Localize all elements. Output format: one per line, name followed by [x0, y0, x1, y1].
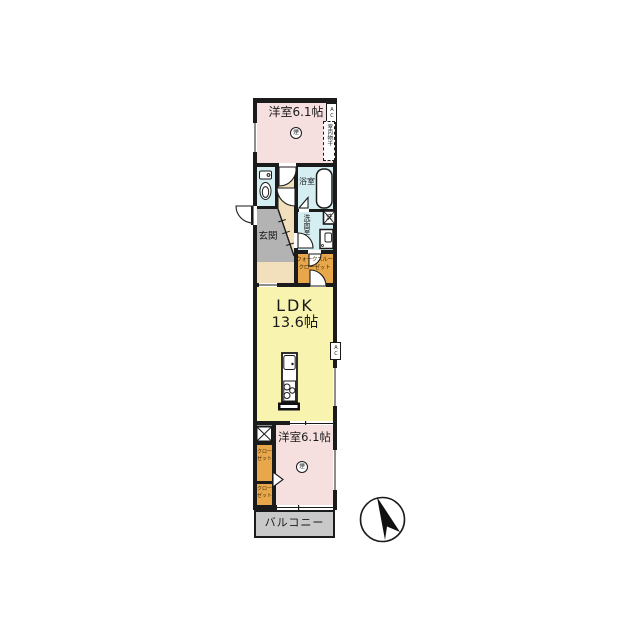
ac-unit-top: AC	[326, 103, 337, 123]
closet-upper-label-line2: ゼット	[257, 457, 273, 463]
closet-lower-label-line2: ゼット	[257, 494, 273, 500]
ldk-name-label: LDK	[257, 297, 333, 315]
smoke-detector-top-label: 煙	[291, 130, 302, 136]
indoor-drying-box: 室内物干	[323, 121, 335, 161]
washbasin-icon	[320, 230, 333, 249]
door-swing-toilet	[277, 188, 295, 206]
balcony-label: バルコニー	[254, 517, 335, 530]
ac-unit-top-label: AC	[329, 107, 334, 119]
bedroom-top-label: 洋室6.1帖	[258, 106, 334, 120]
smoke-detector-bottom-label: 煙	[297, 464, 308, 470]
indoor-drying-label: 室内物干	[326, 124, 332, 146]
door-fold-bath	[299, 198, 308, 209]
door-swing-wtc-bottom	[310, 270, 326, 286]
utility-box-icon	[257, 427, 273, 442]
walkthrough-closet-label-line1: ウォークスルー	[296, 257, 333, 263]
closet-upper-label-line1: クロー	[257, 450, 273, 456]
door-swing-bedroom-top	[279, 167, 296, 186]
genkan-label: 玄関	[256, 232, 280, 243]
bath-label: 浴室	[296, 177, 318, 186]
north-arrow-icon	[361, 497, 405, 542]
door-swing-washroom	[298, 233, 313, 248]
kitchen-icon	[282, 353, 297, 402]
entrance-door-leaf	[251, 206, 254, 225]
toilet-icon	[260, 171, 272, 200]
door-fold-closet	[273, 472, 283, 487]
bedroom-bottom-label: 洋室6.1帖	[276, 431, 333, 444]
washer-label: 洗	[324, 214, 336, 221]
bathtub-icon	[317, 169, 333, 208]
closet-lower-label-line1: クロー	[257, 487, 273, 493]
kitchen-counter-icon	[278, 403, 300, 411]
ac-unit-ldk: AC	[330, 342, 341, 360]
page: { "plan": { "rooms": { "bedroom_top": { …	[0, 0, 640, 640]
washroom-label: 洗面室	[303, 214, 310, 235]
door-swing-entrance	[236, 206, 253, 223]
ac-unit-ldk-label: AC	[333, 345, 338, 357]
ldk-size-label: 13.6帖	[257, 315, 333, 332]
walkthrough-closet-label-line2: クローゼット	[296, 265, 333, 271]
